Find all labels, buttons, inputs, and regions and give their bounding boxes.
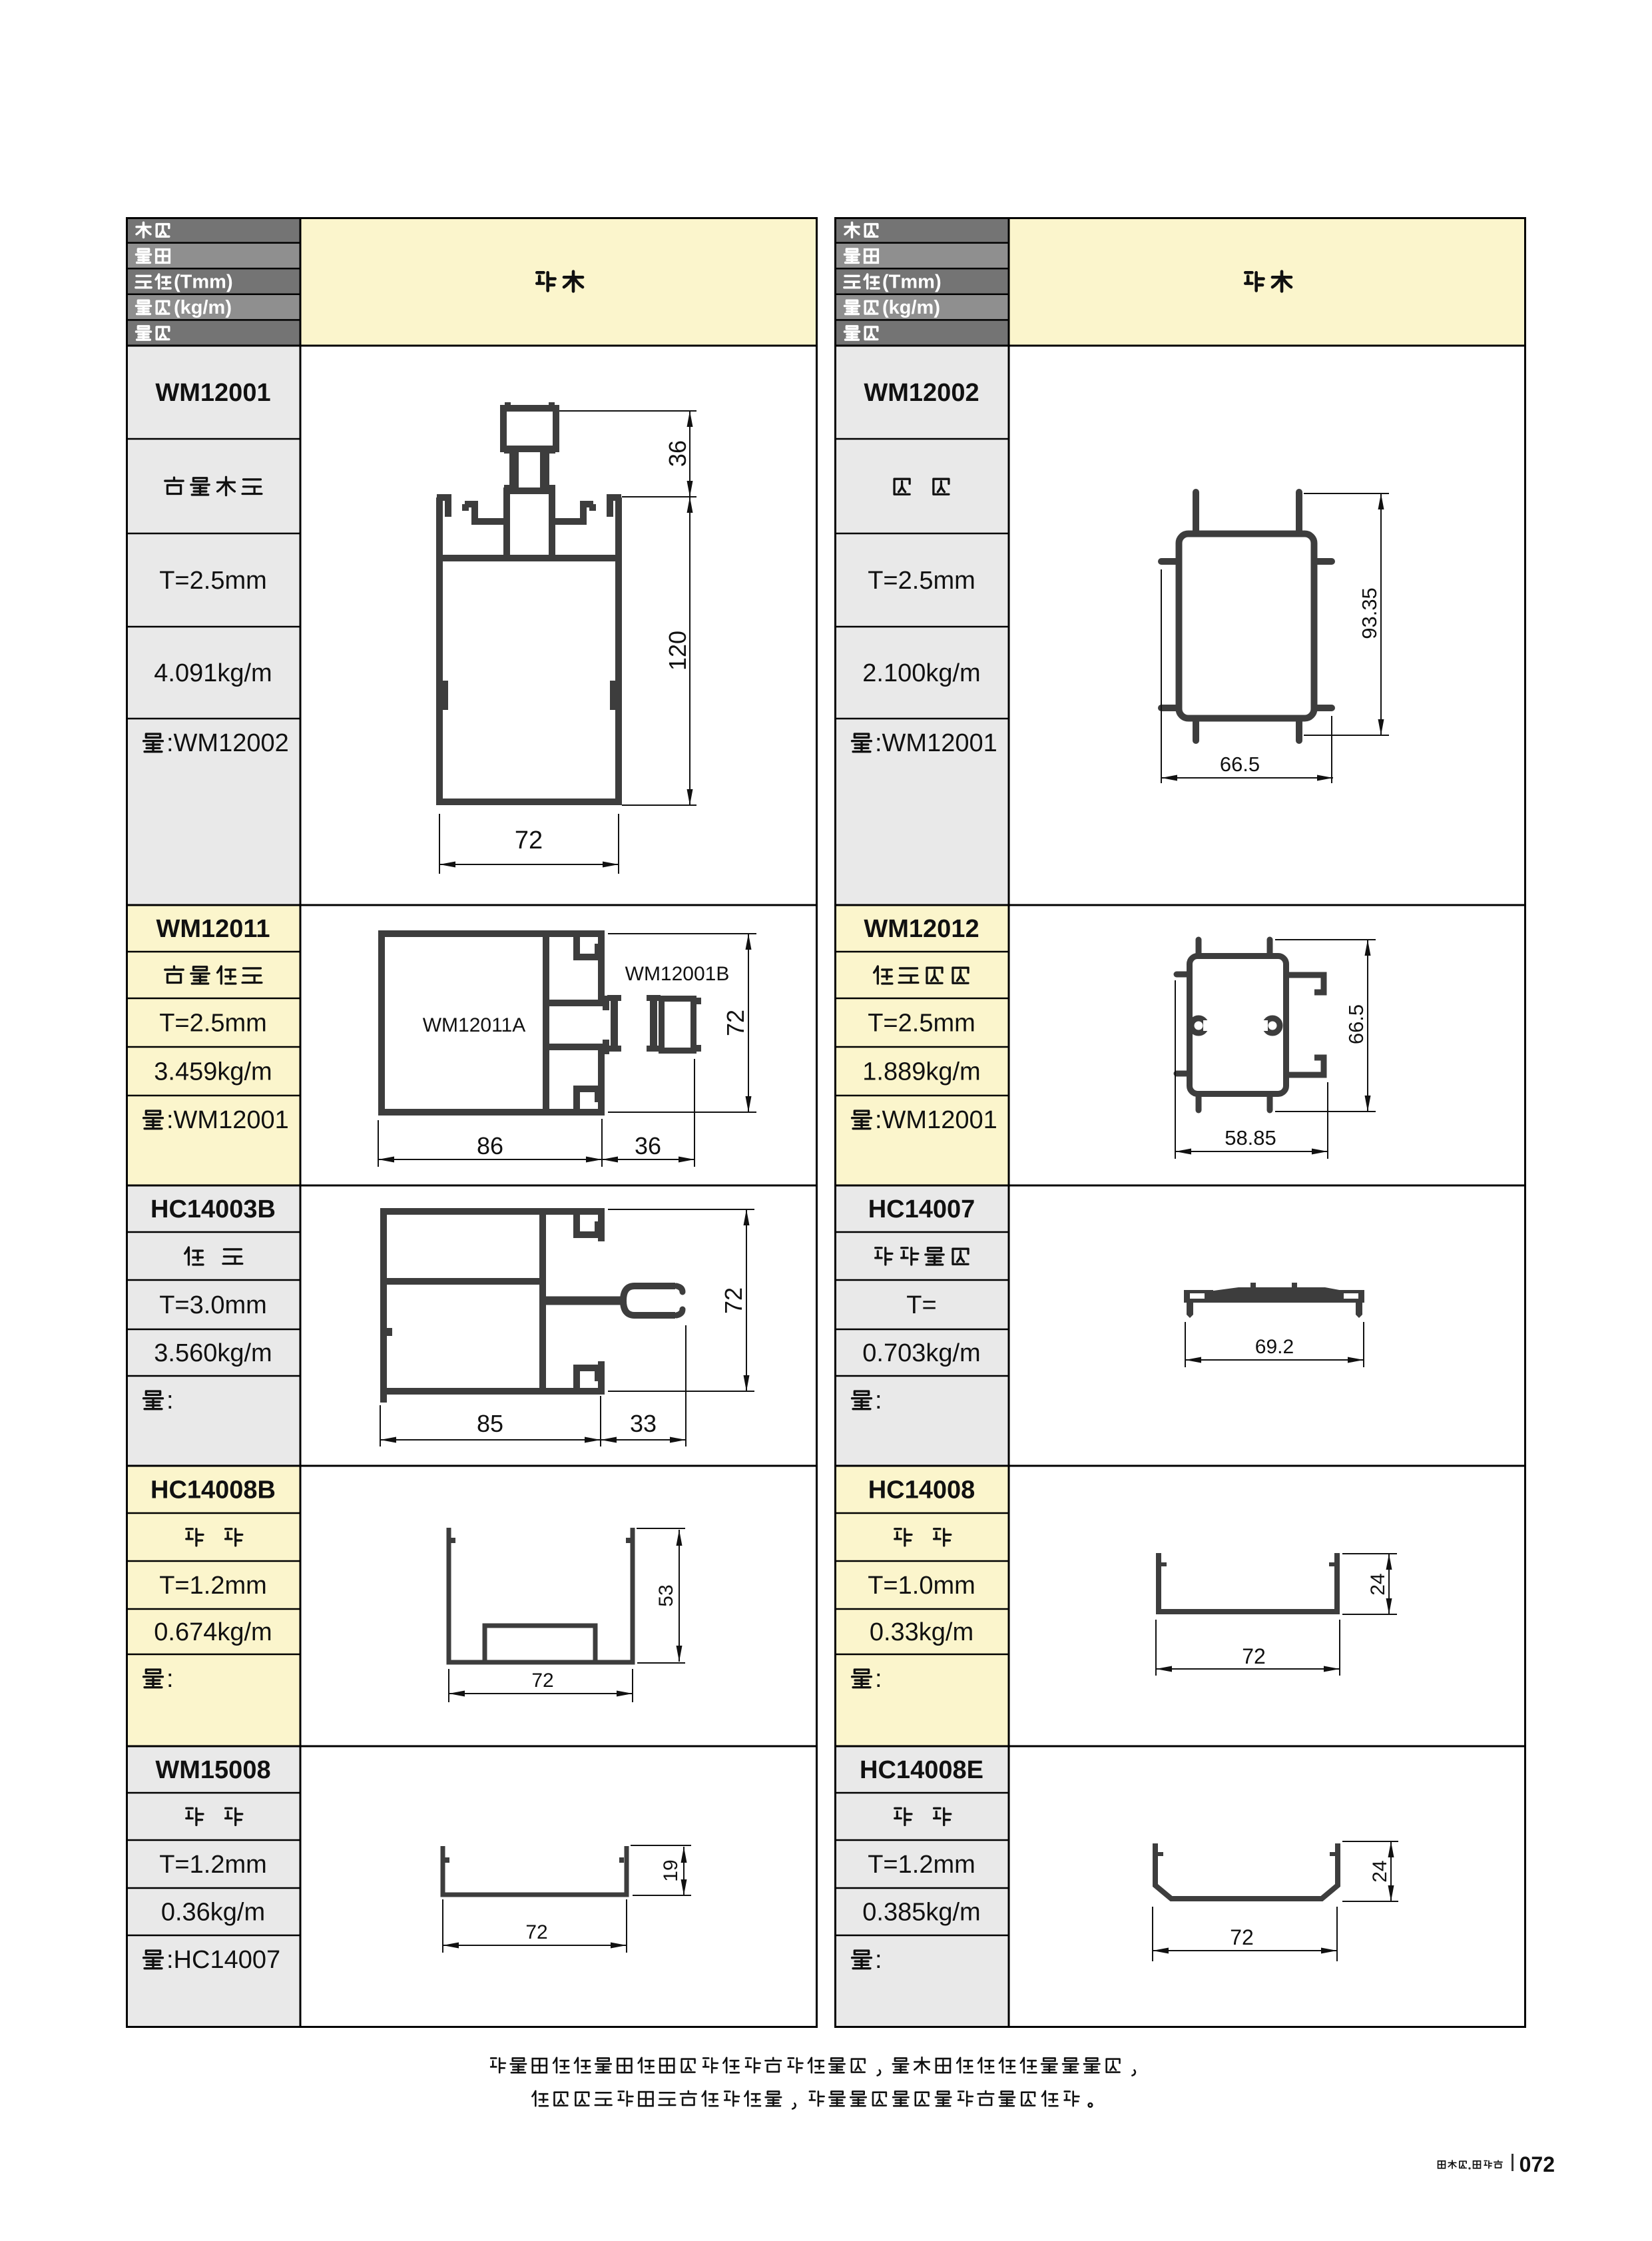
svg-text:53: 53 [655, 1584, 677, 1606]
svg-text:T=: T= [906, 1291, 936, 1319]
svg-text:T=2.5mm: T=2.5mm [159, 567, 267, 595]
svg-text:0.674kg/m: 0.674kg/m [154, 1618, 272, 1646]
svg-text:72: 72 [1230, 1925, 1254, 1949]
svg-text:T=3.0mm: T=3.0mm [159, 1291, 267, 1319]
svg-text:T=1.2mm: T=1.2mm [159, 1851, 267, 1879]
svg-text:66.5: 66.5 [1220, 753, 1260, 776]
svg-text:WM12001B: WM12001B [625, 963, 730, 985]
svg-text:72: 72 [515, 826, 543, 854]
svg-text:36: 36 [664, 440, 691, 467]
svg-text:072: 072 [1519, 2152, 1555, 2176]
svg-text:69.2: 69.2 [1255, 1336, 1294, 1358]
svg-text:72: 72 [722, 1010, 749, 1036]
svg-text:WM12011A: WM12011A [423, 1014, 526, 1036]
svg-text:T=2.5mm: T=2.5mm [159, 1010, 267, 1038]
svg-text:T=2.5mm: T=2.5mm [868, 567, 975, 595]
svg-text:0.703kg/m: 0.703kg/m [862, 1339, 980, 1367]
svg-text:(Tmm): (Tmm) [882, 272, 942, 293]
svg-text::HC14007: :HC14007 [166, 1946, 280, 1974]
svg-text:58.85: 58.85 [1225, 1126, 1276, 1149]
svg-text::WM12001: :WM12001 [875, 1106, 997, 1134]
svg-text:19: 19 [660, 1859, 682, 1881]
svg-text:85: 85 [477, 1410, 503, 1437]
svg-text::: : [875, 1387, 882, 1415]
svg-text:4.091kg/m: 4.091kg/m [154, 659, 272, 687]
svg-text::: : [875, 1665, 882, 1693]
svg-text:1.889kg/m: 1.889kg/m [862, 1058, 980, 1086]
svg-text:HC14008B: HC14008B [150, 1476, 276, 1504]
svg-text:33: 33 [630, 1410, 657, 1437]
svg-text:HC14008: HC14008 [868, 1476, 975, 1504]
svg-text:WM12002: WM12002 [864, 379, 979, 407]
svg-text:0.385kg/m: 0.385kg/m [862, 1899, 980, 1927]
svg-text:120: 120 [664, 631, 691, 671]
svg-text:86: 86 [477, 1132, 503, 1159]
svg-text:WM12011: WM12011 [156, 915, 270, 943]
svg-text:72: 72 [720, 1287, 747, 1314]
svg-text:WM12012: WM12012 [864, 915, 979, 943]
svg-text:T=2.5mm: T=2.5mm [868, 1010, 975, 1038]
svg-text:72: 72 [1242, 1644, 1266, 1668]
svg-text:36: 36 [635, 1132, 661, 1159]
svg-text::: : [166, 1387, 174, 1415]
svg-text:(Tmm): (Tmm) [174, 272, 233, 293]
svg-text:(kg/m): (kg/m) [174, 297, 232, 318]
svg-text::WM12001: :WM12001 [875, 729, 997, 757]
svg-text:0.36kg/m: 0.36kg/m [161, 1899, 265, 1927]
svg-text::: : [166, 1665, 174, 1693]
svg-text::: : [875, 1946, 882, 1974]
svg-text:0.33kg/m: 0.33kg/m [870, 1618, 973, 1646]
svg-text:72: 72 [531, 1670, 553, 1692]
svg-text:66.5: 66.5 [1344, 1004, 1368, 1044]
svg-text::WM12001: :WM12001 [166, 1106, 289, 1134]
svg-text:WM15008: WM15008 [155, 1756, 270, 1784]
svg-text:93.35: 93.35 [1358, 587, 1381, 639]
svg-text:HC14003B: HC14003B [150, 1195, 276, 1223]
svg-text:2.100kg/m: 2.100kg/m [862, 659, 980, 687]
svg-text:HC14008E: HC14008E [860, 1756, 983, 1784]
svg-text:3.459kg/m: 3.459kg/m [154, 1058, 272, 1086]
svg-text:3.560kg/m: 3.560kg/m [154, 1339, 272, 1367]
svg-text:WM12001: WM12001 [155, 379, 270, 407]
svg-text:72: 72 [525, 1921, 547, 1943]
svg-text:(kg/m): (kg/m) [882, 297, 940, 318]
svg-text:HC14007: HC14007 [868, 1195, 975, 1223]
svg-text:T=1.2mm: T=1.2mm [159, 1572, 267, 1600]
svg-text:24: 24 [1369, 1860, 1391, 1882]
svg-text:T=1.0mm: T=1.0mm [868, 1572, 975, 1600]
svg-text::WM12002: :WM12002 [166, 729, 289, 757]
svg-text:24: 24 [1367, 1573, 1389, 1595]
svg-text:T=1.2mm: T=1.2mm [868, 1851, 975, 1879]
